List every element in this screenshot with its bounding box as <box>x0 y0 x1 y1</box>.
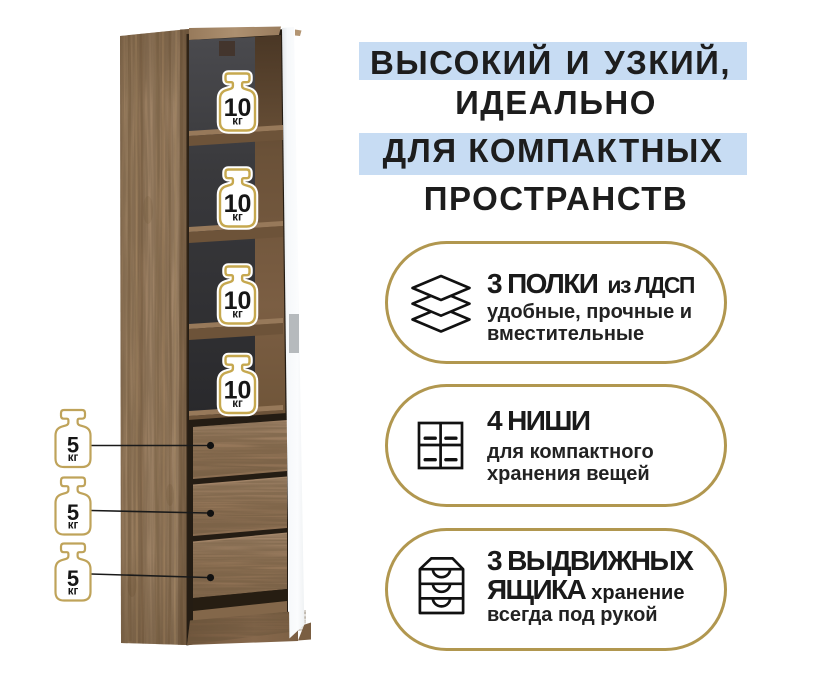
svg-text:кг: кг <box>68 519 79 531</box>
svg-text:кг: кг <box>232 308 243 320</box>
svg-text:кг: кг <box>68 452 79 464</box>
svg-text:кг: кг <box>68 585 79 597</box>
svg-text:кг: кг <box>232 211 243 223</box>
svg-text:кг: кг <box>232 115 243 127</box>
svg-text:кг: кг <box>232 398 243 410</box>
